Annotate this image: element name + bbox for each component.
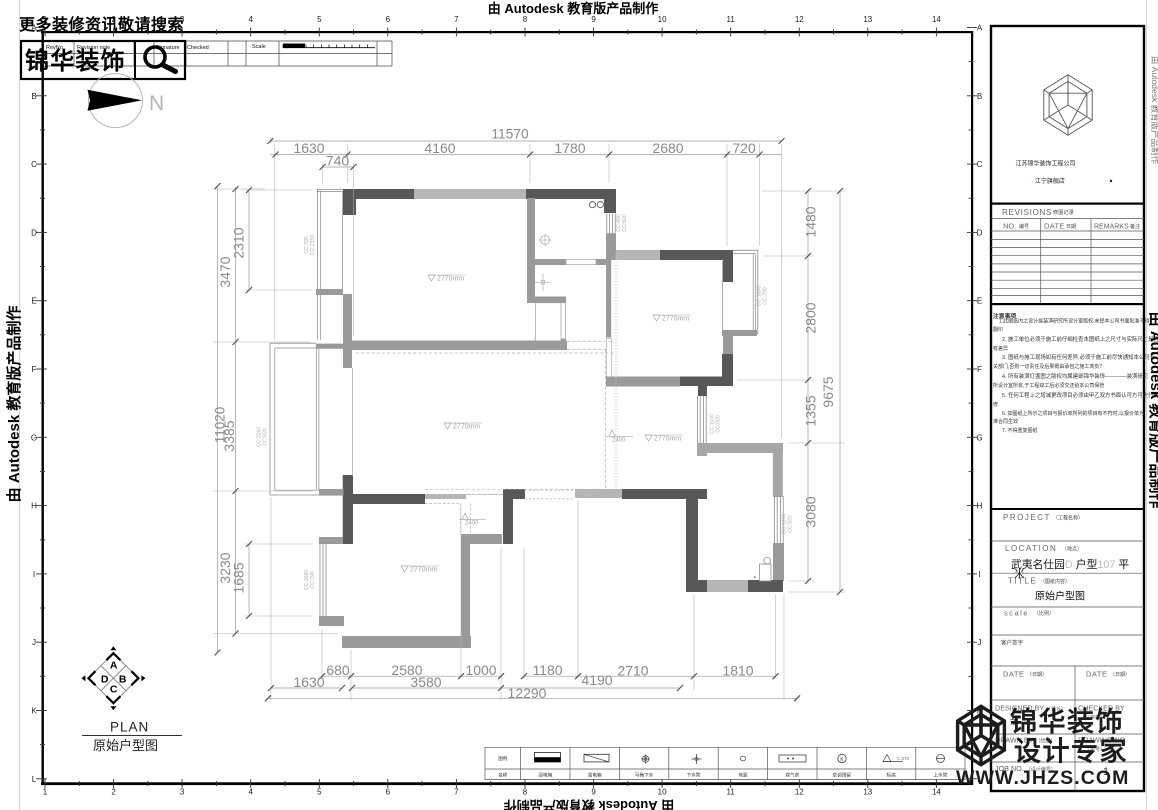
svg-text:2400: 2400 (612, 437, 626, 443)
svg-text:14: 14 (932, 15, 941, 24)
svg-text:H: H (31, 502, 37, 511)
svg-text:1685: 1685 (231, 562, 247, 593)
svg-text:11: 11 (727, 15, 736, 24)
svg-text:· 江宁旗舰店: · 江宁旗舰店 (1031, 177, 1065, 185)
svg-text:CC:920: CC:920 (263, 428, 269, 446)
svg-text:1.此图纸内之设计属装潢研究所设计室版权,未经本公司书面批准: 1.此图纸内之设计属装潢研究所设计室版权,未经本公司书面批准不得 (999, 318, 1150, 325)
svg-text:原始户型图: 原始户型图 (1035, 590, 1085, 603)
svg-text:名称: 名称 (498, 772, 508, 779)
svg-text:D: D (977, 228, 983, 237)
svg-text:下水管: 下水管 (687, 772, 701, 779)
svg-text:3385: 3385 (221, 420, 237, 451)
svg-text:2770mm: 2770mm (662, 316, 689, 323)
svg-text:1000: 1000 (465, 662, 496, 678)
svg-text:煤气表: 煤气表 (785, 772, 799, 779)
svg-text:翻印: 翻印 (993, 326, 1003, 333)
svg-text:弱电箱: 弱电箱 (538, 772, 552, 779)
svg-text:12290: 12290 (508, 685, 547, 701)
svg-text:地漏: 地漏 (738, 772, 748, 779)
svg-text:E: E (31, 297, 36, 306)
svg-text:720: 720 (732, 140, 756, 156)
svg-text:日期: 日期 (1066, 224, 1076, 230)
svg-text:1780: 1780 (554, 140, 585, 156)
svg-text:2710: 2710 (617, 663, 648, 679)
svg-text:4: 4 (248, 788, 253, 797)
svg-text:由 Autodesk 教育版产品制作: 由 Autodesk 教育版产品制作 (1150, 56, 1158, 165)
svg-text:7: 7 (454, 788, 459, 797)
svg-text:9: 9 (591, 15, 596, 24)
svg-text:上水管: 上水管 (934, 772, 948, 779)
svg-text:C: C (110, 684, 118, 696)
svg-text:9: 9 (591, 788, 596, 797)
svg-text:680: 680 (326, 662, 350, 678)
svg-text:由 Autodesk 教育版产品制作: 由 Autodesk 教育版产品制作 (488, 1, 658, 16)
svg-text:1: 1 (43, 788, 48, 797)
svg-text:F: F (977, 365, 982, 374)
svg-text:锦华装饰: 锦华装饰 (25, 47, 126, 75)
svg-text:13: 13 (863, 15, 872, 24)
svg-text:12: 12 (795, 15, 804, 24)
svg-text:LOCATION: LOCATION (1005, 544, 1057, 553)
svg-text:（图纸内容）: （图纸内容） (1040, 578, 1070, 585)
svg-text:1355: 1355 (803, 395, 819, 426)
svg-text:G: G (31, 433, 37, 442)
svg-text:F: F (32, 365, 37, 374)
svg-text:2680: 2680 (652, 140, 683, 156)
svg-text:6: 6 (386, 15, 391, 24)
svg-text:PROJECT: PROJECT (1003, 513, 1051, 522)
svg-text:B: B (977, 92, 982, 101)
svg-text:强电箱: 强电箱 (588, 772, 602, 779)
svg-text:C: C (31, 160, 37, 169)
svg-text:K: K (840, 757, 844, 763)
svg-text:空调预留: 空调预留 (833, 772, 852, 779)
svg-text:WWW.JHZS.COM: WWW.JHZS.COM (956, 767, 1130, 789)
svg-text:6. 如图纸上所示之项目与报价单所列的项目有不符时,以报价: 6. 如图纸上所示之项目与报价单所列的项目有不符时,以报价单为 (1002, 410, 1144, 417)
svg-text:13: 13 (863, 788, 872, 797)
svg-text:1810: 1810 (722, 663, 753, 679)
svg-text:由 Autodesk 教育版产品制作: 由 Autodesk 教育版产品制作 (1147, 312, 1158, 509)
svg-text:1180: 1180 (532, 662, 562, 678)
svg-text:14: 14 (932, 788, 941, 797)
svg-text:标高: 标高 (886, 772, 896, 779)
svg-text:740: 740 (326, 153, 350, 169)
svg-text:2770mm: 2770mm (453, 424, 480, 431)
svg-text:图例: 图例 (498, 755, 508, 762)
svg-text:由 Autodesk 教育版产品制作: 由 Autodesk 教育版产品制作 (504, 798, 674, 810)
svg-text:REMARKS: REMARKS (1094, 224, 1129, 231)
svg-text:6: 6 (386, 788, 391, 797)
svg-text:I: I (978, 570, 980, 579)
svg-text:PLAN: PLAN (110, 720, 149, 735)
svg-text:11: 11 (727, 788, 736, 797)
svg-text:武夷名仕园D 户型107 平: 武夷名仕园D 户型107 平 (1011, 557, 1129, 571)
svg-text:L: L (32, 775, 37, 784)
svg-text:12: 12 (795, 788, 804, 797)
svg-text:7: 7 (454, 15, 459, 24)
svg-text:10: 10 (658, 788, 667, 797)
svg-text:scale: scale (1004, 609, 1029, 618)
svg-text:5. 任何工程上之增减更改项目必须由甲乙双方书面认可方可进: 5. 任何工程上之增减更改项目必须由甲乙双方书面认可方可进行装 (1002, 391, 1158, 399)
svg-text:所设计室所有,于工程竣工后必须交还给本公司保管: 所设计室所有,于工程竣工后必须交还给本公司保管 (993, 382, 1104, 389)
svg-text:C: C (977, 160, 983, 169)
svg-text:3080: 3080 (803, 496, 819, 527)
svg-text:更多装修资讯敬请搜索: 更多装修资讯敬请搜索 (19, 15, 184, 34)
svg-text:2. 施工单位必须于施工前仔细检查本图纸上之尺寸与实际尺寸: 2. 施工单位必须于施工前仔细检查本图纸上之尺寸与实际尺寸是否 (1002, 335, 1158, 343)
svg-text:D: D (31, 228, 37, 237)
svg-text:准合同生效: 准合同生效 (993, 418, 1018, 425)
svg-text:DATE: DATE (1003, 670, 1024, 679)
svg-text:2770mm: 2770mm (437, 276, 464, 283)
svg-text:J: J (32, 638, 36, 647)
svg-text:A: A (977, 24, 983, 33)
svg-text:8: 8 (523, 15, 528, 24)
svg-text:1480: 1480 (803, 206, 819, 237)
svg-text:Scale: Scale (252, 44, 266, 50)
svg-text:（日期）: （日期） (1110, 672, 1130, 678)
svg-text:（工程名称）: （工程名称） (1053, 515, 1083, 522)
svg-text:CC:920: CC:920 (788, 515, 794, 533)
svg-text:9675: 9675 (820, 376, 836, 407)
svg-text:1630: 1630 (293, 140, 324, 156)
svg-text:K: K (31, 707, 37, 716)
svg-text:（比例）: （比例） (1034, 610, 1054, 617)
svg-text:CC:920: CC:920 (622, 214, 628, 232)
svg-text:5: 5 (317, 788, 322, 797)
svg-text:4. 所有装潢灯盏图之版权均属建邺锦华装饰————装潢研究: 4. 所有装潢灯盏图之版权均属建邺锦华装饰————装潢研究 (1002, 372, 1149, 380)
svg-text:备注: 备注 (1130, 223, 1140, 230)
svg-text:DATE: DATE (1044, 222, 1065, 231)
svg-text:8: 8 (523, 788, 528, 797)
svg-text:NO.: NO. (1003, 222, 1016, 231)
svg-text:锦华装饰: 锦华装饰 (1010, 706, 1124, 737)
svg-text:H: H (977, 502, 983, 511)
svg-text:1630: 1630 (293, 674, 324, 690)
svg-text:2: 2 (111, 788, 116, 797)
svg-text:J: J (978, 638, 982, 647)
svg-text:3. 图纸与施工现场如有任何差异,必须于施工前尽快通知本公: 3. 图纸与施工现场如有任何差异,必须于施工前尽快通知本公司有 (1002, 353, 1156, 361)
svg-text:3580: 3580 (410, 674, 441, 690)
svg-text:B: B (119, 674, 127, 686)
svg-text:11570: 11570 (491, 127, 529, 142)
svg-text:CC:2350: CC:2350 (310, 235, 316, 256)
svg-text:3470: 3470 (217, 256, 233, 287)
svg-text:DATE: DATE (1086, 670, 1107, 679)
svg-text:由 Autodesk 教育版产品制作: 由 Autodesk 教育版产品制作 (5, 306, 23, 503)
svg-text:4160: 4160 (424, 140, 455, 156)
svg-text:REVISIONS: REVISIONS (1002, 208, 1052, 217)
svg-text:2400: 2400 (465, 521, 479, 527)
svg-text:设计专家: 设计专家 (1014, 736, 1128, 767)
svg-text:CC:790: CC:790 (310, 571, 316, 589)
svg-text:CC:920: CC:920 (716, 415, 722, 433)
svg-text:D: D (101, 674, 109, 686)
svg-text:修: 修 (993, 401, 998, 408)
svg-text:3: 3 (180, 788, 185, 797)
svg-text:Checked: Checked (187, 45, 209, 51)
svg-text:2770mm: 2770mm (654, 436, 681, 443)
svg-text:2310: 2310 (231, 227, 247, 258)
svg-text:5: 5 (317, 15, 322, 24)
svg-text:CC:790: CC:790 (763, 287, 769, 305)
svg-text:B: B (31, 92, 36, 101)
svg-text:7. 不得重复图纸: 7. 不得重复图纸 (1002, 427, 1038, 434)
svg-text:2770mm: 2770mm (410, 567, 437, 574)
svg-text:N: N (149, 92, 164, 115)
svg-text:原始户型图: 原始户型图 (93, 738, 158, 753)
svg-text:E: E (977, 297, 982, 306)
svg-text:C.870: C.870 (897, 756, 910, 761)
svg-text:（地点）: （地点） (1062, 546, 1082, 553)
svg-text:2800: 2800 (803, 302, 819, 333)
svg-text:4: 4 (248, 15, 253, 24)
svg-text:10: 10 (658, 15, 667, 24)
svg-text:编号: 编号 (1019, 223, 1029, 230)
svg-text:A: A (110, 660, 118, 672)
svg-text:关部门,否则一切责任及后果概由承包之施工商负?: 关部门,否则一切责任及后果概由承包之施工商负? (993, 363, 1102, 370)
svg-text:马桶下水: 马桶下水 (635, 772, 654, 779)
svg-text:4190: 4190 (581, 672, 612, 688)
svg-text:客户签字: 客户签字 (1001, 639, 1024, 647)
svg-text:G: G (976, 433, 982, 442)
svg-text:修图记录: 修图记录 (1053, 208, 1074, 216)
svg-text:I: I (33, 570, 35, 579)
svg-text:（日期）: （日期） (1027, 672, 1047, 678)
svg-text:江苏锦华装饰工程公司: 江苏锦华装饰工程公司 (1015, 160, 1075, 168)
svg-text:有差异: 有差异 (993, 345, 1008, 352)
svg-text:TITLE: TITLE (1008, 577, 1037, 586)
